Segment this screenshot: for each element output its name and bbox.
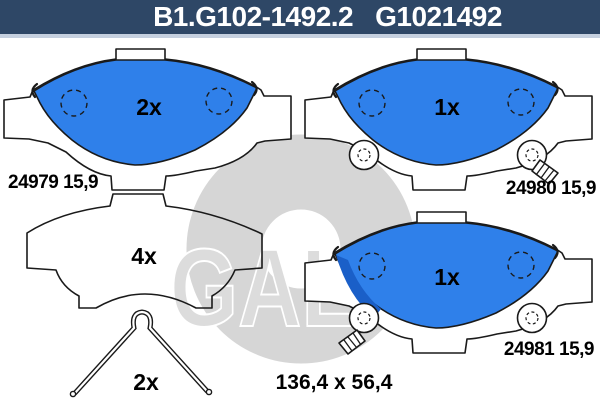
part-number-24979: 24979 15,9 — [8, 172, 98, 193]
mounting-boss-left — [350, 141, 379, 170]
quantity-label-shim: 4x — [131, 243, 157, 269]
part-number-24981: 24981 15,9 — [504, 339, 594, 360]
quantity-label-pad-top-right: 1x — [434, 94, 460, 120]
spring-clip-end-right — [206, 389, 211, 394]
mounting-boss-left — [350, 304, 379, 333]
part-number-24980: 24980 15,9 — [506, 178, 596, 199]
spring-clip-end-left — [70, 391, 75, 396]
diagram-canvas: GALFER — [0, 0, 600, 400]
quantity-label-pad-top-left: 2x — [136, 94, 162, 120]
dimension-label: 136,4 x 56,4 — [276, 371, 393, 394]
quantity-label-spring-clip: 2x — [133, 369, 159, 395]
quantity-label-pad-bottom-right: 1x — [434, 264, 460, 290]
mounting-boss-right — [518, 304, 547, 333]
